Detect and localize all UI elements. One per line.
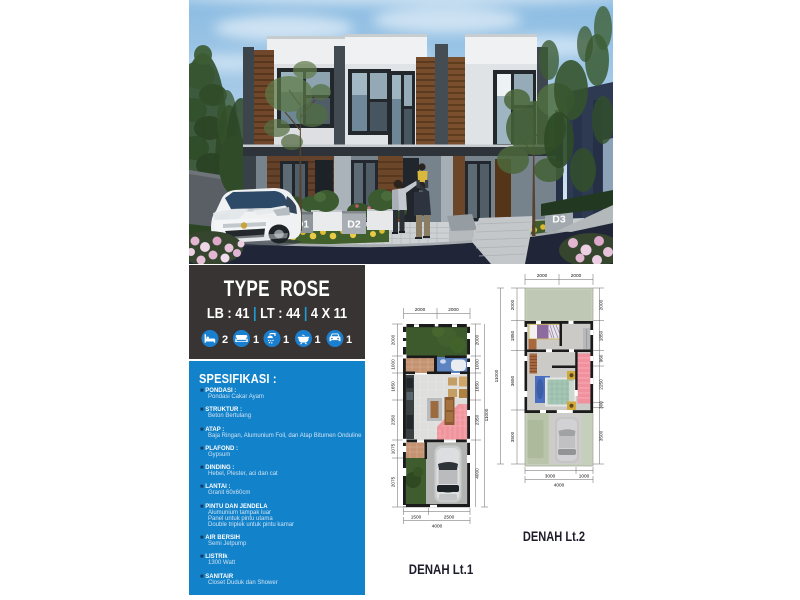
svg-text:2000: 2000 <box>537 273 548 278</box>
svg-text:2000: 2000 <box>391 334 396 345</box>
svg-text:3500: 3500 <box>599 430 604 441</box>
svg-text:1650: 1650 <box>391 381 396 392</box>
svg-text:11000: 11000 <box>494 369 499 382</box>
svg-text:1: 1 <box>253 334 259 346</box>
svg-text:1: 1 <box>346 334 352 346</box>
svg-text:1075: 1075 <box>391 443 396 454</box>
svg-text:3650: 3650 <box>510 375 515 386</box>
svg-text:2500: 2500 <box>444 515 455 520</box>
svg-text:1000: 1000 <box>475 359 480 370</box>
svg-text:1650: 1650 <box>475 381 480 392</box>
svg-text:2000: 2000 <box>475 334 480 345</box>
svg-text:1850: 1850 <box>510 330 515 341</box>
svg-text:3500: 3500 <box>510 431 515 442</box>
svg-text:1000: 1000 <box>579 474 590 479</box>
svg-text:4000: 4000 <box>475 468 480 479</box>
svg-text:1000: 1000 <box>391 359 396 370</box>
svg-text:1: 1 <box>315 334 321 346</box>
svg-text:2000: 2000 <box>448 307 459 312</box>
svg-text:11000: 11000 <box>484 408 489 421</box>
svg-text:4000: 4000 <box>554 483 565 488</box>
svg-text:2: 2 <box>222 334 228 346</box>
svg-text:2000: 2000 <box>510 299 515 310</box>
svg-text:D3: D3 <box>552 214 566 226</box>
svg-text:2350: 2350 <box>475 414 480 425</box>
svg-text:4000: 4000 <box>432 524 443 529</box>
svg-text:2000: 2000 <box>415 307 426 312</box>
svg-text:2350: 2350 <box>391 414 396 425</box>
svg-text:1500: 1500 <box>411 515 422 520</box>
svg-text:3000: 3000 <box>545 474 556 479</box>
svg-text:1850: 1850 <box>599 330 604 341</box>
svg-text:300: 300 <box>599 401 604 409</box>
svg-text:2000: 2000 <box>571 273 582 278</box>
svg-text:2250: 2250 <box>599 379 604 390</box>
svg-text:2000: 2000 <box>599 299 604 310</box>
svg-text:2075: 2075 <box>391 476 396 487</box>
svg-text:1: 1 <box>283 334 289 346</box>
svg-text:D2: D2 <box>347 219 361 231</box>
svg-text:960: 960 <box>599 354 604 362</box>
